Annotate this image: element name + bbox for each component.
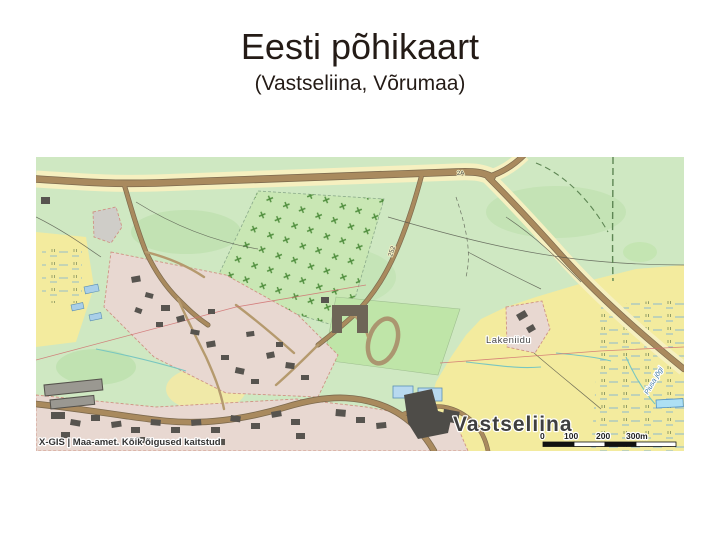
scale-tick-100: 100 xyxy=(564,431,578,441)
page-subtitle: (Vastseliina, Võrumaa) xyxy=(0,72,720,96)
map-attribution: X-GIS | Maa-amet. Kõik õigused kaitstud xyxy=(39,437,221,448)
page-title: Eesti põhikaart xyxy=(0,26,720,68)
scale-tick-0: 0 xyxy=(540,431,545,441)
marsh-symbols xyxy=(591,297,684,451)
scale-tick-200: 200 xyxy=(596,431,610,441)
river-pond xyxy=(656,399,683,408)
basemap-svg: 2A 252 Lakeniidu Piusa jõgi Vastseliina … xyxy=(36,157,684,451)
road-number-label: 2A xyxy=(457,171,465,177)
slide: Eesti põhikaart (Vastseliina, Võrumaa) xyxy=(0,0,720,540)
scale-tick-300: 300m xyxy=(626,431,648,441)
map-image: 2A 252 Lakeniidu Piusa jõgi Vastseliina … xyxy=(36,157,684,451)
farm-label: Lakeniidu xyxy=(486,335,531,346)
town-label: Vastseliina xyxy=(453,413,573,436)
